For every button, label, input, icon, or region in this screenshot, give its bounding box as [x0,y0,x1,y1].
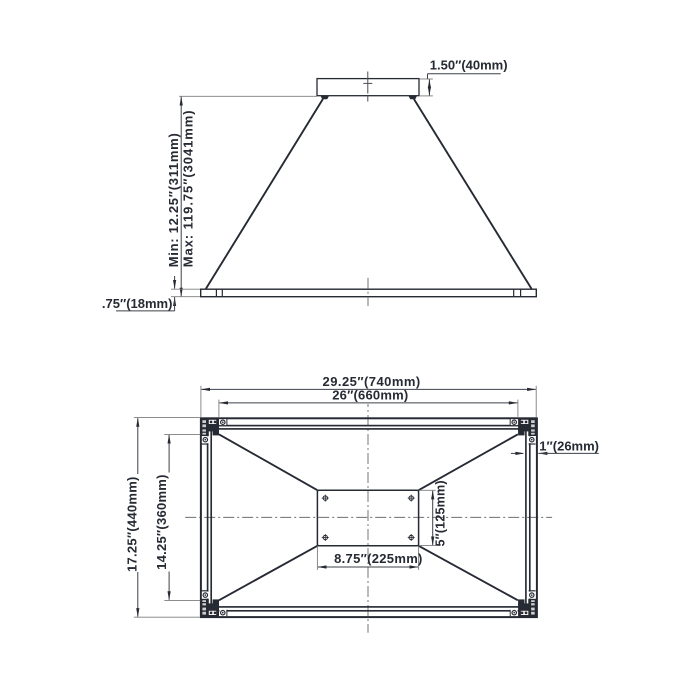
svg-text:Min: 12.25″(311mm): Min: 12.25″(311mm) [166,133,181,268]
svg-text:8.75″(225mm): 8.75″(225mm) [334,551,423,566]
svg-text:.75″(18mm): .75″(18mm) [102,296,173,311]
svg-text:Max: 119.75″(3041mm): Max: 119.75″(3041mm) [181,109,196,267]
svg-text:17.25″(440mm): 17.25″(440mm) [125,476,140,572]
svg-text:5″(125mm): 5″(125mm) [434,480,448,546]
svg-text:14.25″(360mm): 14.25″(360mm) [154,474,169,570]
svg-text:1.50″(40mm): 1.50″(40mm) [430,57,508,72]
svg-text:1″(26mm): 1″(26mm) [539,439,599,454]
svg-text:26″(660mm): 26″(660mm) [332,387,408,402]
